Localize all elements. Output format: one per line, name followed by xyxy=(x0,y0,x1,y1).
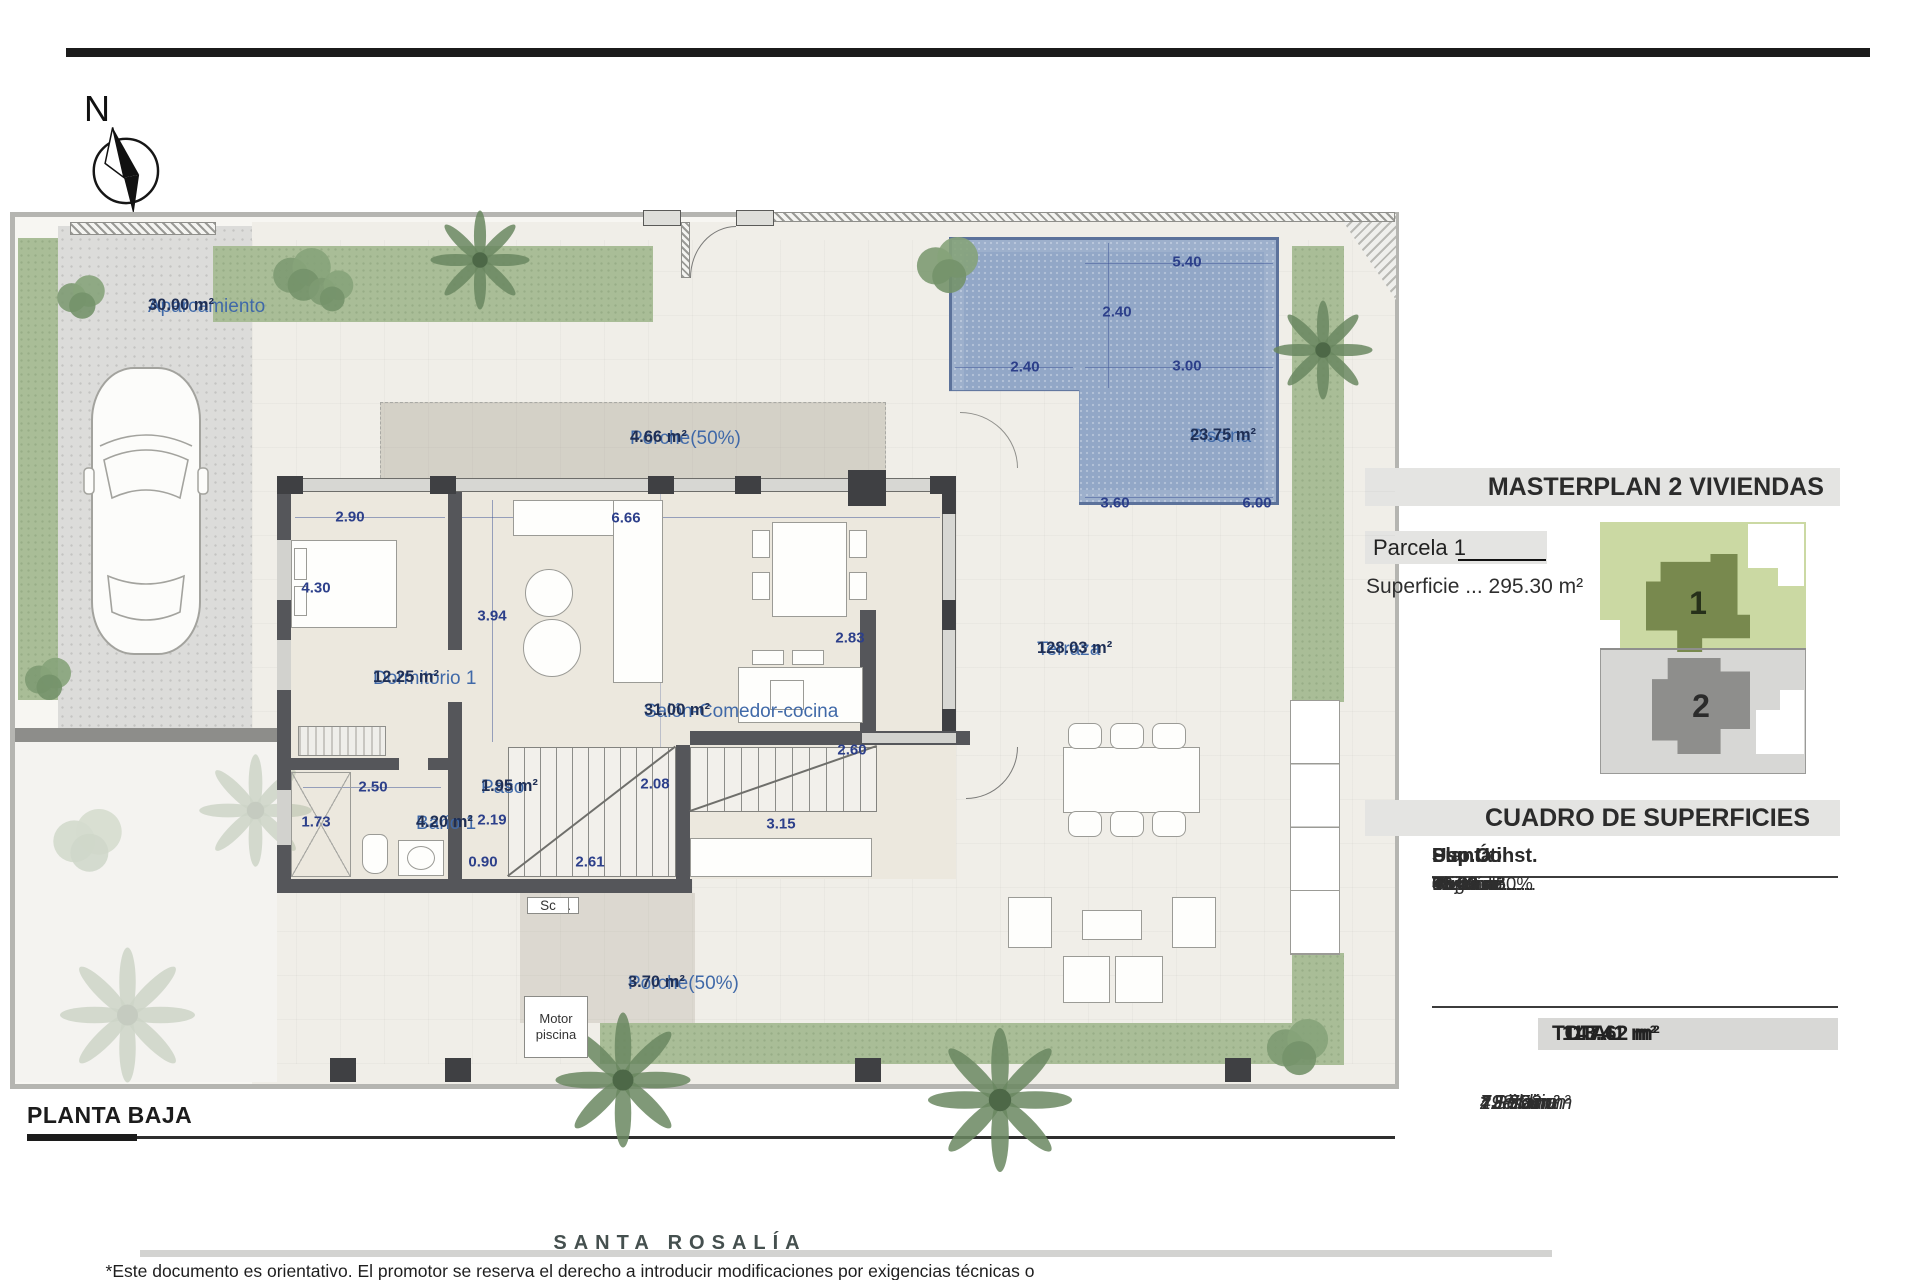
outdoor-storage-units xyxy=(1290,700,1340,955)
pillar xyxy=(942,600,956,630)
outdoor-chair xyxy=(1152,723,1186,749)
dimension-label: 6.00 xyxy=(1242,495,1271,512)
outdoor-dining-table xyxy=(1063,747,1200,813)
pillar xyxy=(735,476,761,494)
page-top-rule xyxy=(66,48,1870,57)
outdoor-chair xyxy=(1068,723,1102,749)
dimension-label: 2.40 xyxy=(1010,359,1039,376)
room-area: 1.95 m² xyxy=(481,777,538,796)
wall-bath-partition xyxy=(277,758,399,770)
wall-bedroom-partition-lower xyxy=(448,702,462,760)
pillar xyxy=(1225,1058,1251,1082)
dimension-label: 4.30 xyxy=(301,580,330,597)
pillar xyxy=(330,1058,356,1082)
plan-title-underline-thin xyxy=(137,1136,1395,1139)
boundary-fence xyxy=(773,212,1395,222)
dimension-label: 3.60 xyxy=(1100,495,1129,512)
outdoor-chair xyxy=(1068,811,1102,837)
sun-lounger xyxy=(1115,956,1163,1003)
surfaces-total: TOTAL 113.41 m² 147.62 m² xyxy=(1538,1018,1838,1050)
dimension-label: 5.40 xyxy=(1172,254,1201,271)
col-sup-const: Sup.Const. xyxy=(1432,845,1538,868)
chair xyxy=(849,572,867,600)
wall-bedroom-partition xyxy=(448,492,462,650)
window xyxy=(277,540,291,600)
pillow xyxy=(294,548,307,580)
toilet xyxy=(362,834,388,874)
table-cell: 11.03 m² xyxy=(1432,873,1504,895)
minimap-notch xyxy=(1778,524,1804,586)
pool-motor-label: Motor piscina xyxy=(524,996,588,1058)
table-rule-bottom xyxy=(1432,1006,1838,1008)
compass-icon xyxy=(76,118,172,222)
wall-stairs xyxy=(676,745,690,893)
minimap-notch xyxy=(1780,690,1804,754)
equipment-strip: Aerot. Lvd Sc xyxy=(527,897,657,935)
driveway-gate xyxy=(70,222,216,235)
plan-title-underline-thick xyxy=(27,1134,137,1141)
room-area: 23.75 m² xyxy=(1190,426,1256,445)
outdoor-chair xyxy=(1110,723,1144,749)
room-area: 30.00 m² xyxy=(148,296,214,315)
minimap-divider xyxy=(1600,648,1806,650)
car-icon xyxy=(80,360,212,662)
dimension-label: 1.73 xyxy=(301,814,330,831)
dimension-label: 2.08 xyxy=(640,776,669,793)
dimension-label: 2.19 xyxy=(477,812,506,829)
sun-lounger xyxy=(1063,956,1110,1003)
extra-value: 49.95 m² xyxy=(1480,1092,1559,1115)
masterplan-header: MASTERPLAN 2 VIVIENDAS xyxy=(1365,468,1840,506)
pillar xyxy=(277,476,303,494)
pillar xyxy=(648,476,674,494)
driveway-retaining-wall xyxy=(15,728,277,742)
chair xyxy=(752,572,770,600)
dimension-label: 2.61 xyxy=(575,854,604,871)
dimension-label: 0.90 xyxy=(468,854,497,871)
dimension-label: 2.50 xyxy=(358,779,387,796)
pillar xyxy=(942,492,956,514)
room-area: 4.20 m² xyxy=(416,813,473,832)
pillar xyxy=(445,1058,471,1082)
coffee-table xyxy=(525,569,573,617)
washbasin-bowl xyxy=(407,846,435,870)
armchair xyxy=(1008,897,1052,948)
dimension-label: 6.66 xyxy=(611,510,640,527)
total-const-value: 147.62 m² xyxy=(1564,1022,1660,1046)
chair xyxy=(752,530,770,558)
minimap-notch xyxy=(1600,620,1620,650)
floorplan-page: N xyxy=(0,0,1920,1280)
chair xyxy=(849,530,867,558)
pillar xyxy=(430,476,456,494)
glass-door xyxy=(862,733,956,743)
wall-south xyxy=(277,879,692,893)
dimension-label: 2.90 xyxy=(335,509,364,526)
pillar xyxy=(855,1058,881,1082)
pillar xyxy=(942,709,956,731)
dimension-label: 3.15 xyxy=(766,816,795,833)
footer-rule xyxy=(140,1250,1552,1257)
room-area: 4.66 m² xyxy=(630,428,687,447)
room-area: 3.70 m² xyxy=(628,973,685,992)
outdoor-chair xyxy=(1152,811,1186,837)
corner-pillar xyxy=(848,470,886,506)
window xyxy=(277,640,291,690)
stool xyxy=(752,650,784,665)
dimension-label: 3.94 xyxy=(477,608,506,625)
room-area: 31.00 m² xyxy=(644,701,710,720)
dimension-label: 2.60 xyxy=(837,742,866,759)
sofa-chaise xyxy=(613,500,663,683)
coffee-table xyxy=(523,619,581,677)
wall-bath-partition xyxy=(428,758,462,770)
surfaces-header: CUADRO DE SUPERFICIES xyxy=(1365,800,1840,836)
room-area: 12.25 m² xyxy=(373,668,439,687)
lounge-table xyxy=(1082,910,1142,940)
dining-table xyxy=(772,522,847,617)
dim-line xyxy=(295,517,445,518)
wardrobe xyxy=(298,726,386,756)
outdoor-chair xyxy=(1110,811,1144,837)
kitchen-counter xyxy=(690,838,872,877)
pedestrian-gate-jamb xyxy=(681,222,690,278)
dimension-label: 3.00 xyxy=(1172,358,1201,375)
gate-pillar xyxy=(736,210,774,226)
room-area: 128.03 m² xyxy=(1037,639,1112,658)
dimension-label: 2.40 xyxy=(1102,304,1131,321)
sc-unit-label: Sc xyxy=(527,897,569,914)
disclaimer-text: *Este documento es orientativo. El promo… xyxy=(100,1261,1040,1280)
dimension-label: 2.83 xyxy=(835,630,864,647)
stool xyxy=(792,650,824,665)
gate-pillar xyxy=(643,210,681,226)
window xyxy=(277,790,291,845)
parcel-underline xyxy=(1458,559,1546,561)
armchair xyxy=(1172,897,1216,948)
washbasin xyxy=(398,840,444,876)
plan-title: PLANTA BAJA xyxy=(27,1102,192,1129)
